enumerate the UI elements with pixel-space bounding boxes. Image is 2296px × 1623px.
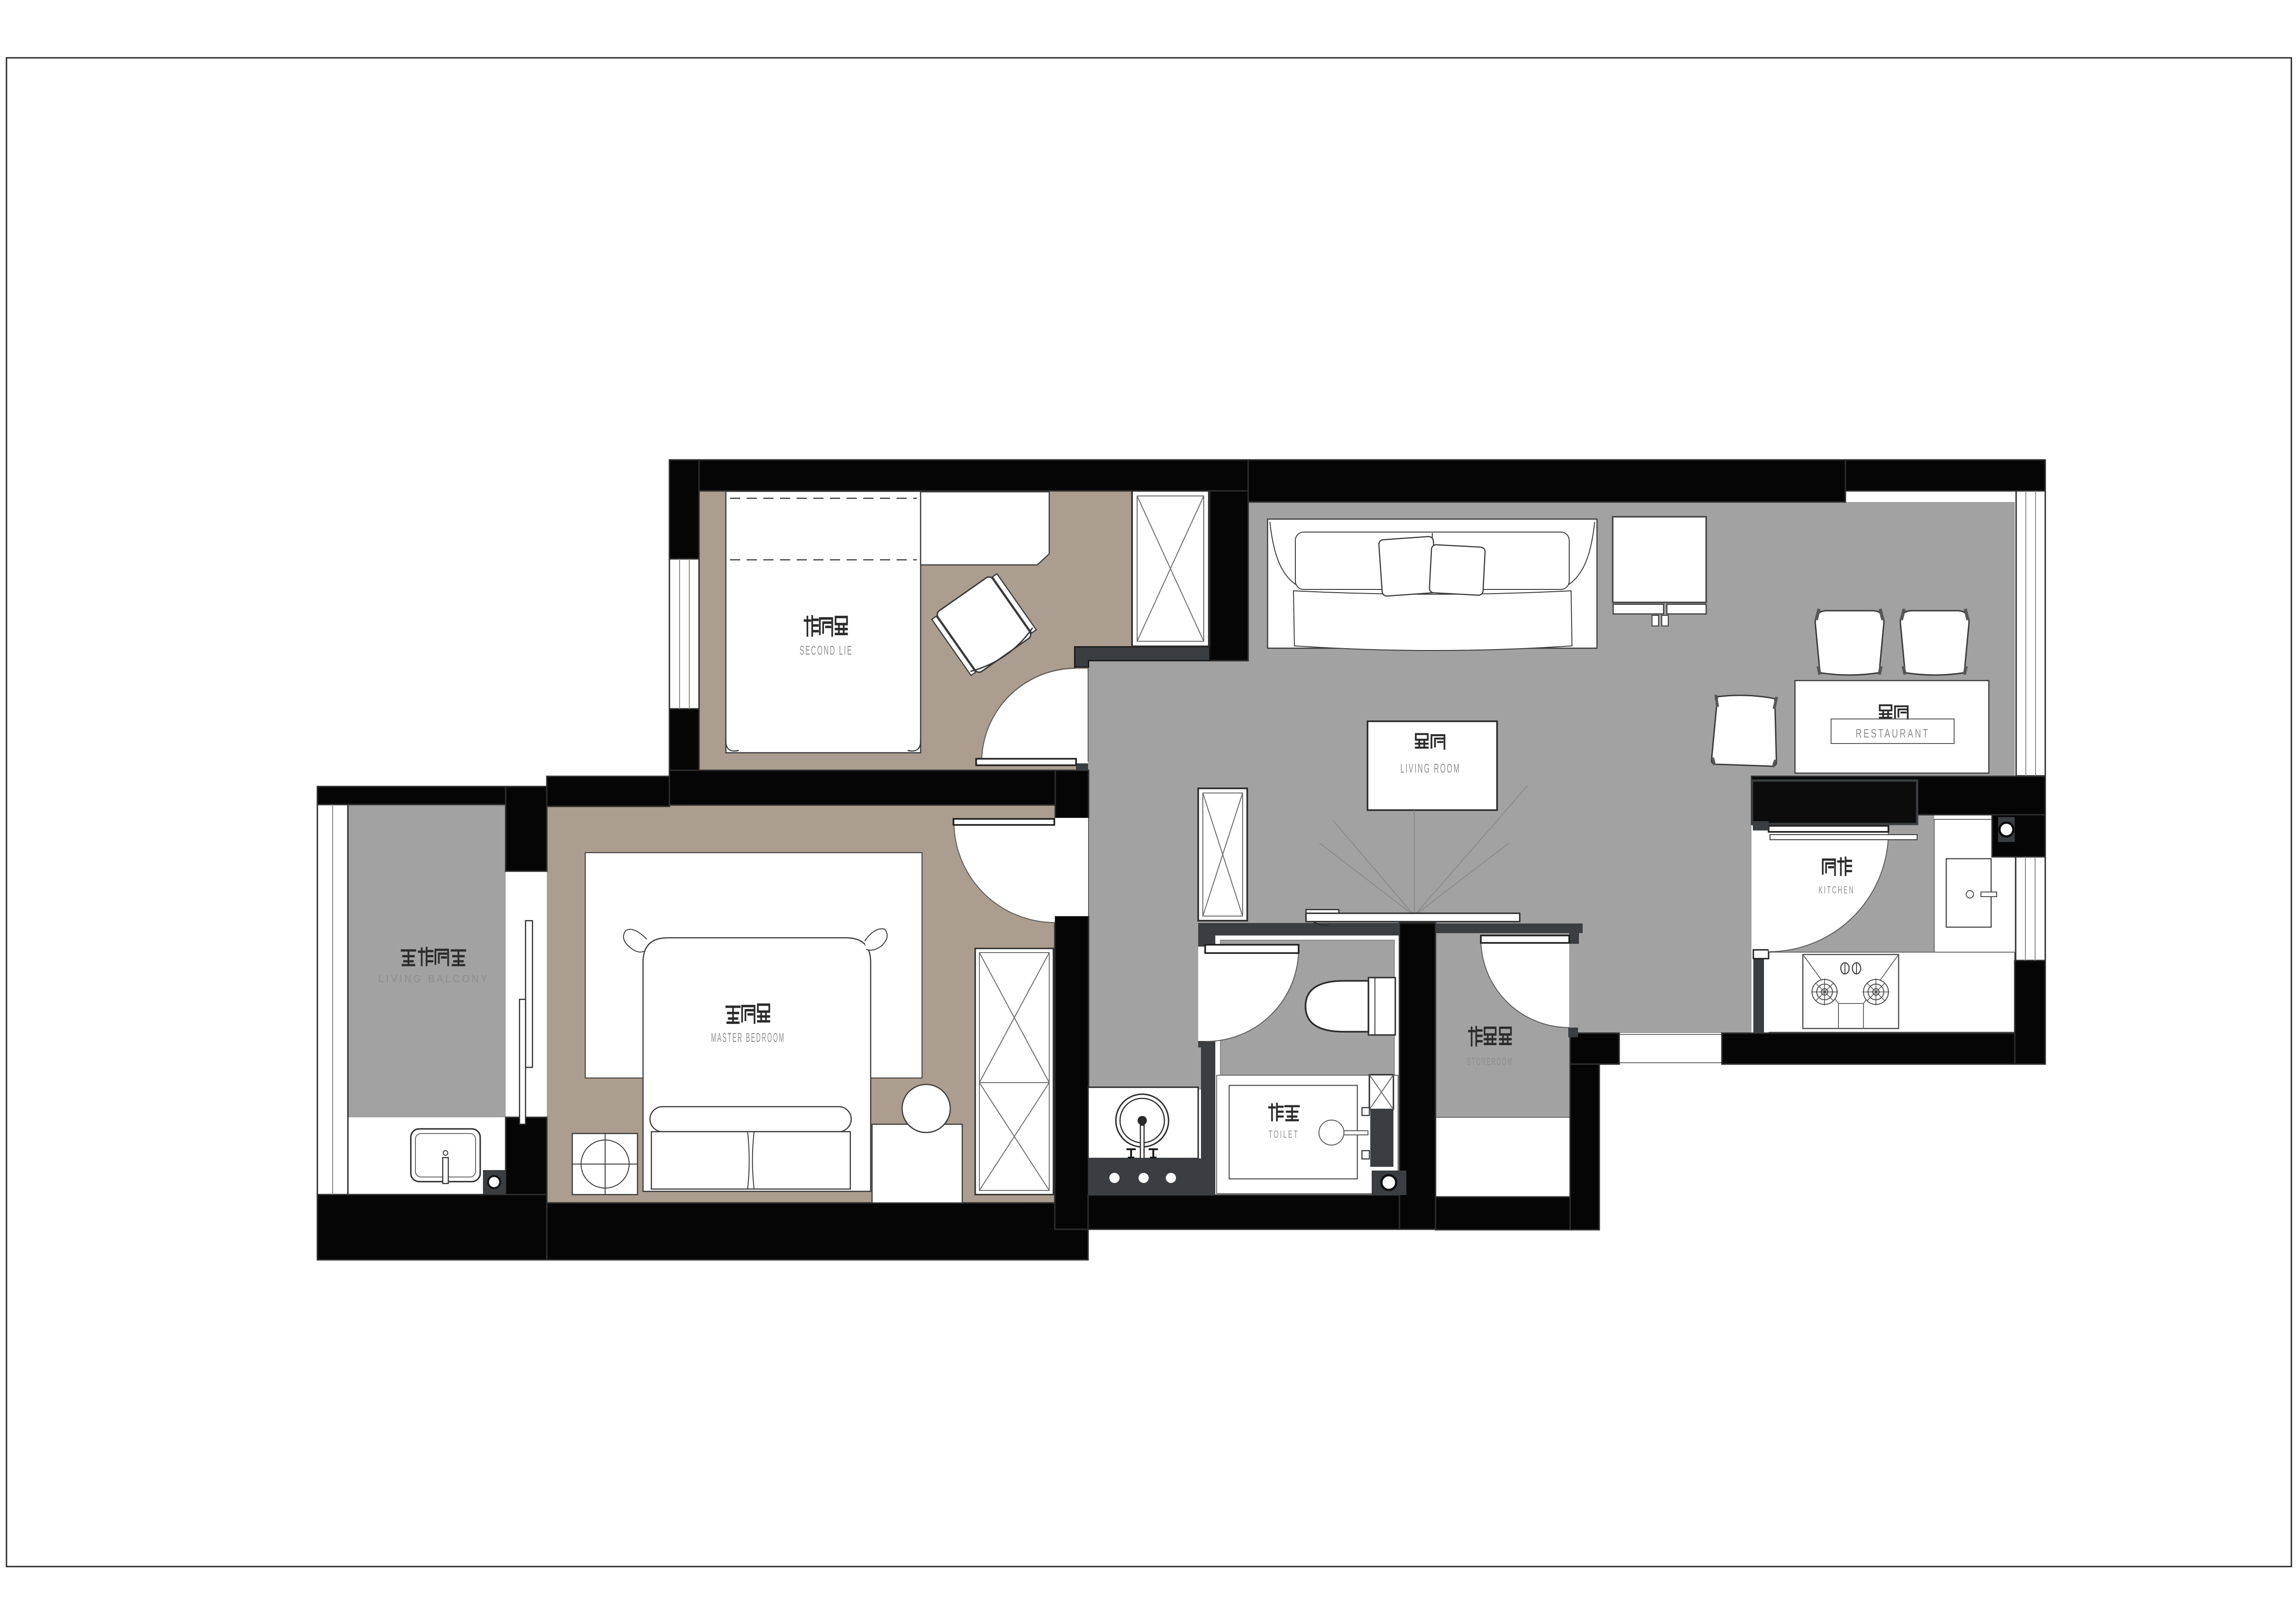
- svg-text:STOREROOM: STOREROOM: [1467, 1056, 1513, 1067]
- svg-text:KITCHEN: KITCHEN: [1819, 884, 1855, 896]
- svg-text:RESTAURANT: RESTAURANT: [1856, 726, 1930, 740]
- svg-text:LIVING ROOM: LIVING ROOM: [1400, 761, 1461, 775]
- svg-text:TOILET: TOILET: [1269, 1128, 1299, 1140]
- svg-text:MASTER BEDROOM: MASTER BEDROOM: [711, 1030, 785, 1045]
- svg-text:LIVING BALCONY: LIVING BALCONY: [378, 973, 489, 985]
- svg-text:SECOND LIE: SECOND LIE: [800, 643, 853, 657]
